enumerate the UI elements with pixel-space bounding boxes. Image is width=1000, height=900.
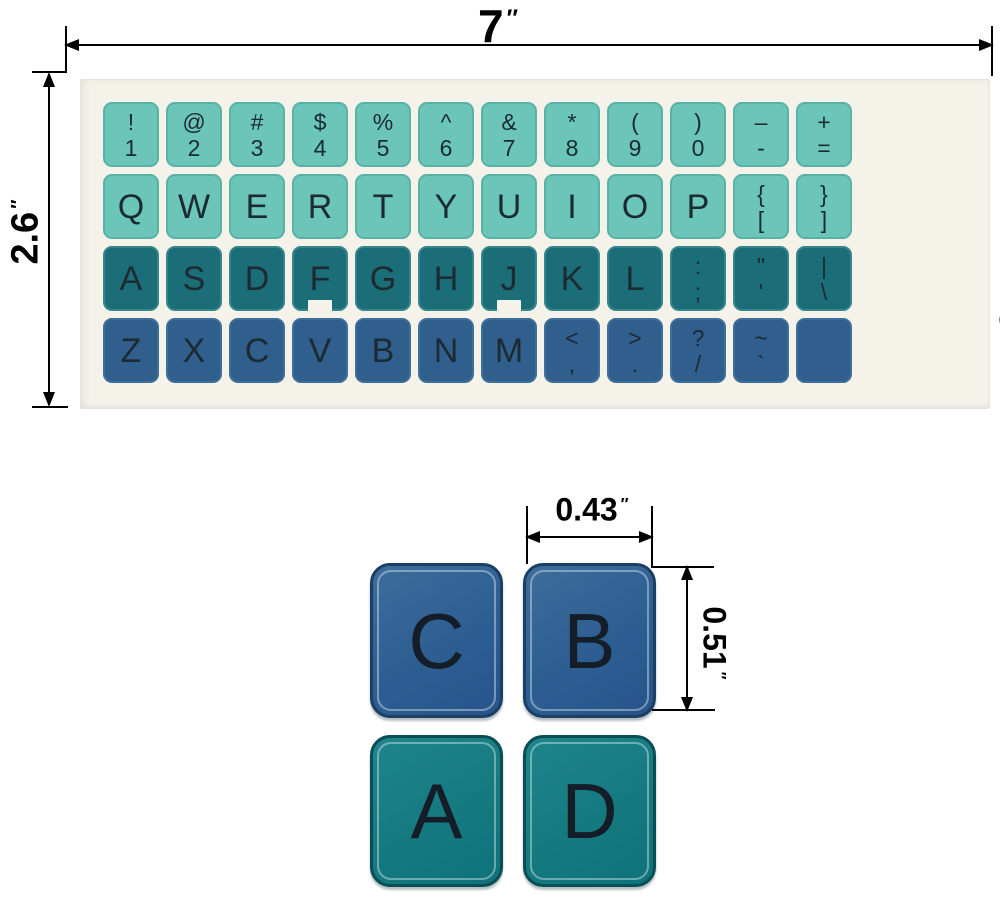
sticker-row: QWERTYUIOP{[}] xyxy=(103,174,852,239)
key-legend: X xyxy=(183,334,206,368)
detail-key-C: C xyxy=(370,563,503,718)
key-legend: D xyxy=(245,262,270,296)
key-legend-base: , xyxy=(569,351,575,377)
detail-key-D: D xyxy=(523,735,656,887)
key-legend-base: 4 xyxy=(314,135,327,161)
sticker-key: B xyxy=(355,318,411,383)
sticker-key: !1 xyxy=(103,102,159,167)
key-height-dimension-arrow xyxy=(686,567,688,710)
homing-notch xyxy=(497,300,521,312)
key-legend-base: / xyxy=(695,351,701,377)
key-legend: I xyxy=(567,190,576,224)
sticker-key: }] xyxy=(796,174,852,239)
key-legend-shift: ) xyxy=(694,109,702,135)
sticker-key: Z xyxy=(103,318,159,383)
sheet-width-value: 7 xyxy=(478,0,504,52)
key-legend-base: 5 xyxy=(377,135,390,161)
key-legend-shift: < xyxy=(565,325,578,351)
homing-notch xyxy=(308,300,332,312)
sticker-key: :; xyxy=(670,246,726,311)
sticker-row: ASDFGHJKL:;"'|\ xyxy=(103,246,852,311)
key-legend-base: 7 xyxy=(503,135,516,161)
sticker-rows: !1@2#3$4%5^6&7*8(9)0–-+=QWERTYUIOP{[}]AS… xyxy=(103,102,852,383)
sticker-key: (9 xyxy=(607,102,663,167)
inch-mark: ″ xyxy=(507,5,518,32)
key-legend: B xyxy=(372,334,395,368)
key-width-dimension-arrow xyxy=(527,536,652,538)
sticker-key: ?/ xyxy=(670,318,726,383)
key-legend-shift: | xyxy=(821,253,827,279)
key-height-label: 0.51″ xyxy=(696,606,733,679)
key-legend-shift: } xyxy=(820,181,828,207)
sticker-key: T xyxy=(355,174,411,239)
key-legend: S xyxy=(183,262,206,296)
key-legend-shift: & xyxy=(501,109,516,135)
key-legend: N xyxy=(434,334,459,368)
key-legend: R xyxy=(308,190,333,224)
key-legend-shift: ( xyxy=(631,109,639,135)
sticker-key: O xyxy=(607,174,663,239)
key-legend: Y xyxy=(435,190,458,224)
key-legend: G xyxy=(370,262,396,296)
detail-key-legend: A xyxy=(410,772,462,850)
sticker-key: L xyxy=(607,246,663,311)
key-legend-shift: ~ xyxy=(754,325,767,351)
key-legend-shift: > xyxy=(628,325,641,351)
sticker-key: Y xyxy=(418,174,474,239)
detail-key-legend: D xyxy=(561,772,617,850)
key-legend-base: ` xyxy=(757,351,765,377)
detail-key-legend: C xyxy=(408,602,464,680)
key-legend-shift: ! xyxy=(128,109,134,135)
key-legend-base: 8 xyxy=(566,135,579,161)
sticker-key: {[ xyxy=(733,174,789,239)
inch-mark: ″ xyxy=(8,199,30,208)
sticker-key: Q xyxy=(103,174,159,239)
key-width-value: 0.43 xyxy=(555,492,617,528)
sticker-key: C xyxy=(229,318,285,383)
key-legend-shift: { xyxy=(757,181,765,207)
sticker-key: G xyxy=(355,246,411,311)
key-legend: L xyxy=(626,262,645,296)
sticker-key: += xyxy=(796,102,852,167)
key-legend: O xyxy=(622,190,648,224)
sticker-key: W xyxy=(166,174,222,239)
key-legend: Q xyxy=(118,190,144,224)
sticker-key: J xyxy=(481,246,537,311)
key-legend: F xyxy=(310,262,331,296)
sticker-key: –- xyxy=(733,102,789,167)
sticker-key: |\ xyxy=(796,246,852,311)
sticker-key: D xyxy=(229,246,285,311)
key-legend-shift: " xyxy=(757,253,765,279)
key-legend-base: . xyxy=(632,351,638,377)
key-legend: C xyxy=(245,334,270,368)
key-legend-base: ; xyxy=(695,279,701,305)
inch-mark: ″ xyxy=(710,672,729,680)
sticker-key: >. xyxy=(607,318,663,383)
key-legend-base: ] xyxy=(821,207,827,233)
sticker-key: ^6 xyxy=(418,102,474,167)
key-legend-base: - xyxy=(757,135,765,161)
sticker-key: $4 xyxy=(292,102,348,167)
sticker-key: U xyxy=(481,174,537,239)
key-legend: H xyxy=(434,262,459,296)
key-legend: W xyxy=(178,190,210,224)
key-legend-shift: – xyxy=(755,109,768,135)
sticker-key: )0 xyxy=(670,102,726,167)
sticker-key: ~` xyxy=(733,318,789,383)
sticker-key: X xyxy=(166,318,222,383)
key-legend: E xyxy=(246,190,269,224)
key-legend-base: 2 xyxy=(188,135,201,161)
sticker-key: %5 xyxy=(355,102,411,167)
sticker-key-blank xyxy=(796,318,852,383)
sticker-key: "' xyxy=(733,246,789,311)
key-legend: A xyxy=(120,262,143,296)
key-height-value: 0.51 xyxy=(697,606,733,668)
detail-key-B: B xyxy=(523,563,656,718)
sticker-key: N xyxy=(418,318,474,383)
key-legend-base: ' xyxy=(759,279,763,305)
key-legend-shift: + xyxy=(817,109,830,135)
key-legend-base: [ xyxy=(758,207,764,233)
sticker-row: ZXCVBNM<,>.?/~` xyxy=(103,318,852,383)
sticker-key: F xyxy=(292,246,348,311)
sticker-row: !1@2#3$4%5^6&7*8(9)0–-+= xyxy=(103,102,852,167)
sticker-key: I xyxy=(544,174,600,239)
sheet-height-label: 2.6″ xyxy=(5,199,48,264)
sticker-key: @2 xyxy=(166,102,222,167)
sticker-key: #3 xyxy=(229,102,285,167)
sticker-key: A xyxy=(103,246,159,311)
key-legend-base: = xyxy=(817,135,830,161)
width-dimension-arrow xyxy=(66,44,992,46)
key-legend-shift: ^ xyxy=(441,109,452,135)
key-legend-shift: # xyxy=(251,109,264,135)
key-legend: M xyxy=(495,334,523,368)
sheet-width-label: 7″ xyxy=(478,0,518,53)
sticker-key: <, xyxy=(544,318,600,383)
sticker-key: *8 xyxy=(544,102,600,167)
sticker-key: K xyxy=(544,246,600,311)
detail-key-legend: B xyxy=(563,602,615,680)
key-legend-base: 1 xyxy=(125,135,138,161)
height-dimension-arrow xyxy=(48,74,50,405)
inch-mark: ″ xyxy=(621,495,629,514)
sticker-key: H xyxy=(418,246,474,311)
key-legend: T xyxy=(373,190,394,224)
sticker-key: S xyxy=(166,246,222,311)
key-legend: J xyxy=(501,262,518,296)
key-legend-base: 6 xyxy=(440,135,453,161)
key-legend: Z xyxy=(121,334,142,368)
key-legend: U xyxy=(497,190,522,224)
key-width-label: 0.43″ xyxy=(555,492,628,529)
sticker-key: R xyxy=(292,174,348,239)
key-legend-shift: * xyxy=(568,109,577,135)
key-legend: P xyxy=(687,190,710,224)
width-extension-line-right xyxy=(991,26,993,76)
key-legend: K xyxy=(561,262,584,296)
key-legend-shift: ? xyxy=(692,325,705,351)
key-legend-shift: @ xyxy=(182,109,205,135)
sticker-key: V xyxy=(292,318,348,383)
sticker-key: &7 xyxy=(481,102,537,167)
key-legend-base: 9 xyxy=(629,135,642,161)
key-legend-shift: % xyxy=(373,109,393,135)
sheet-height-value: 2.6 xyxy=(5,212,47,265)
detail-key-grid: CBAD xyxy=(370,563,656,887)
key-legend-base: 0 xyxy=(692,135,705,161)
key-legend-base: 3 xyxy=(251,135,264,161)
detail-key-A: A xyxy=(370,735,503,887)
key-legend: V xyxy=(309,334,332,368)
key-legend-shift: $ xyxy=(314,109,327,135)
key-legend-base: \ xyxy=(821,279,827,305)
sticker-key: E xyxy=(229,174,285,239)
sticker-key: M xyxy=(481,318,537,383)
key-legend-shift: : xyxy=(695,253,701,279)
sticker-key: P xyxy=(670,174,726,239)
